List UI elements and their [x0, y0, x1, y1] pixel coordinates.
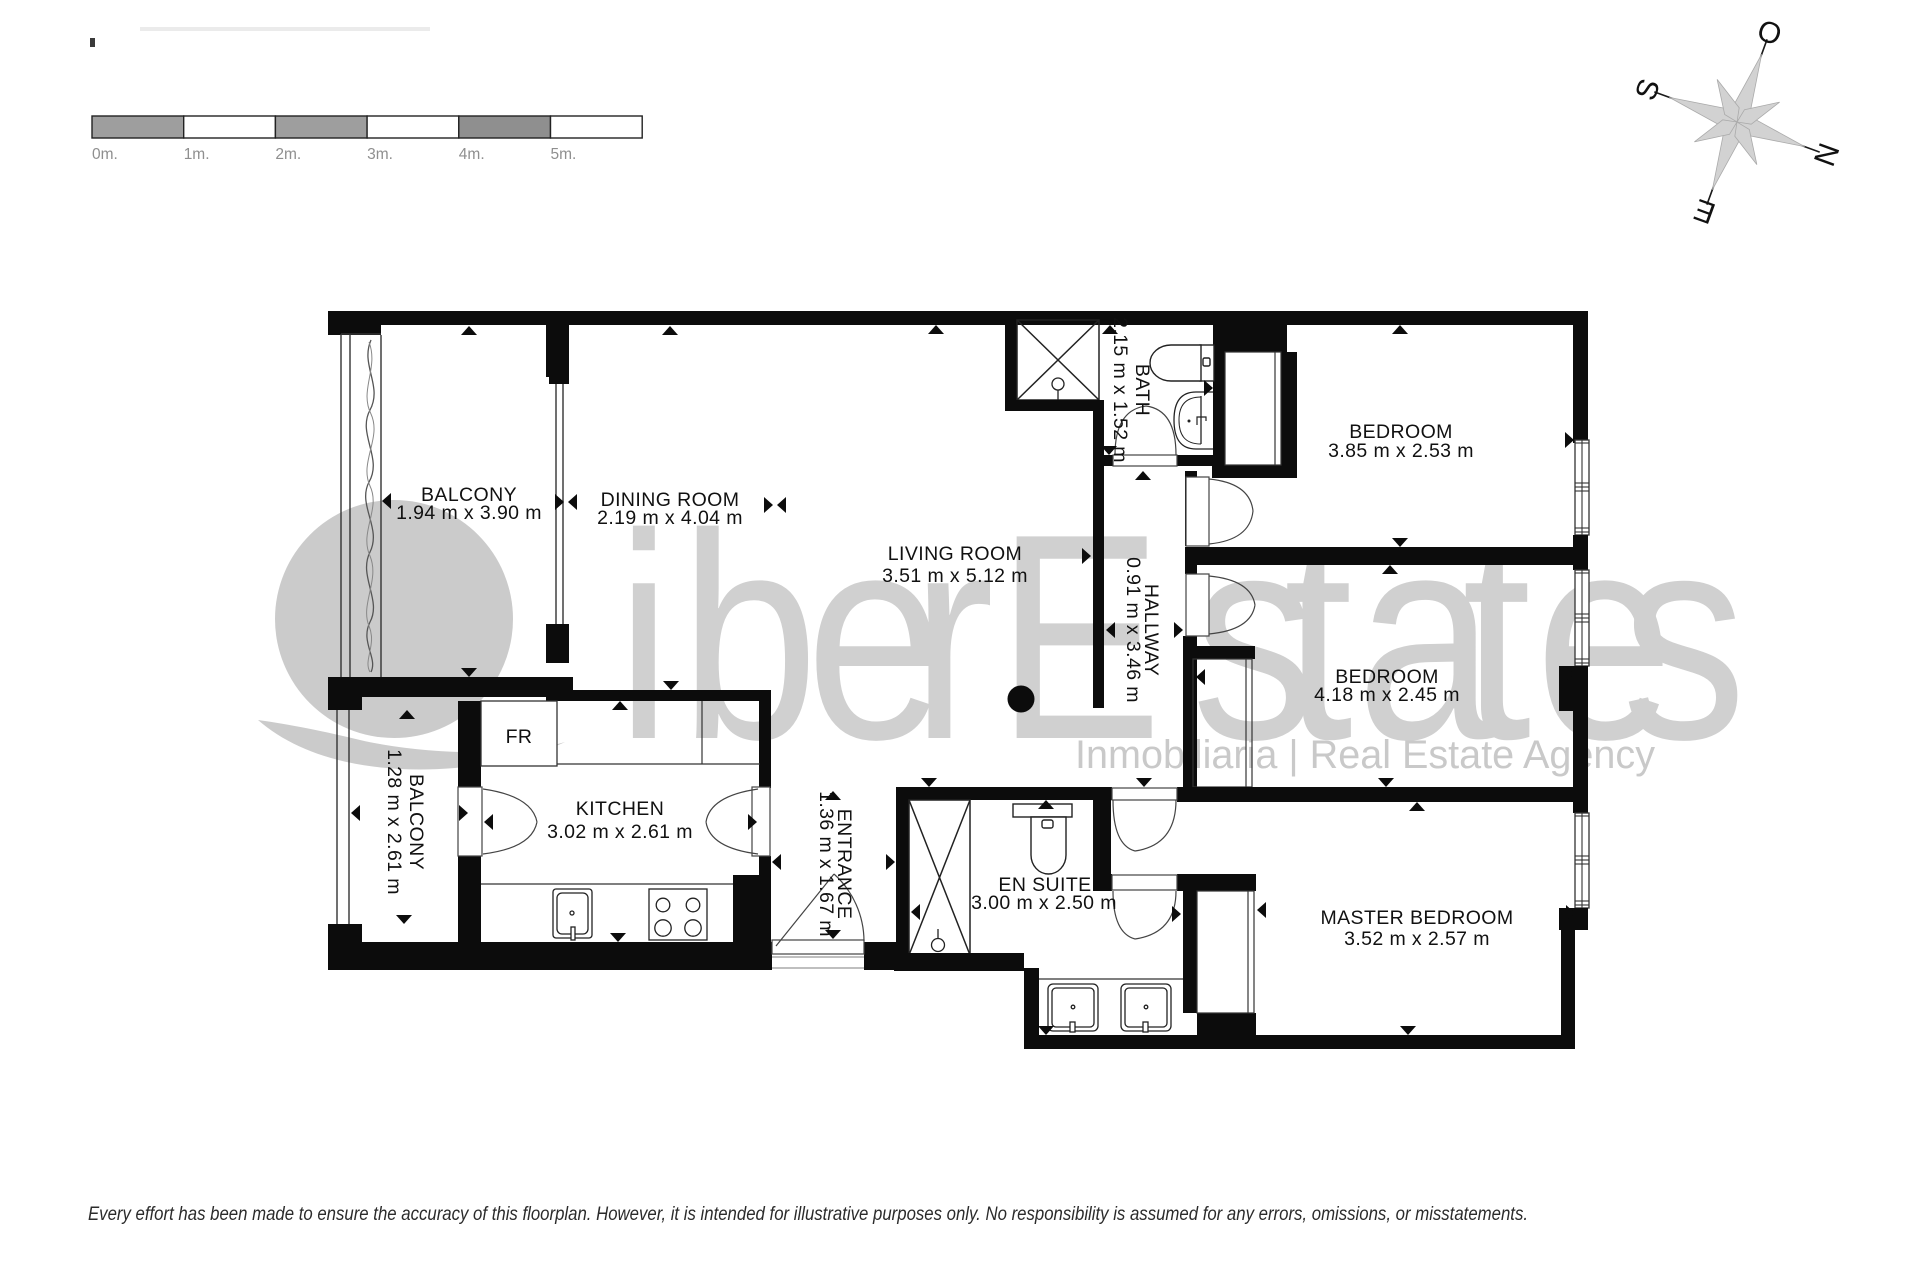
svg-text:1.36 m x 1.67 m: 1.36 m x 1.67 m	[815, 791, 837, 937]
svg-text:3.52 m x 2.57 m: 3.52 m x 2.57 m	[1344, 928, 1490, 950]
svg-text:3.85 m x 2.53 m: 3.85 m x 2.53 m	[1328, 440, 1474, 462]
svg-text:BALCONY: BALCONY	[405, 774, 427, 870]
svg-text:3.02 m x 2.61 m: 3.02 m x 2.61 m	[547, 821, 693, 843]
svg-text:0.91 m x 3.46 m: 0.91 m x 3.46 m	[1122, 557, 1144, 703]
svg-text:2m.: 2m.	[275, 146, 301, 163]
svg-text:2.15 m x 1.52 m: 2.15 m x 1.52 m	[1109, 317, 1131, 463]
svg-text:Every effort has been made to: Every effort has been made to ensure the…	[88, 1204, 1528, 1225]
svg-text:4m.: 4m.	[459, 146, 485, 163]
svg-text:1.28 m x 2.61 m: 1.28 m x 2.61 m	[383, 749, 405, 895]
svg-text:Inmobiliaria | Real Estate Age: Inmobiliaria | Real Estate Agency	[1075, 733, 1655, 777]
svg-text:2.19 m x 4.04 m: 2.19 m x 4.04 m	[597, 507, 743, 529]
svg-text:LIVING ROOM: LIVING ROOM	[888, 543, 1022, 565]
svg-text:MASTER BEDROOM: MASTER BEDROOM	[1320, 907, 1513, 929]
svg-text:3m.: 3m.	[367, 146, 393, 163]
svg-text:3.00 m x 2.50 m: 3.00 m x 2.50 m	[971, 892, 1117, 914]
svg-text:FR: FR	[506, 726, 533, 748]
svg-text:3.51 m x 5.12 m: 3.51 m x 5.12 m	[882, 565, 1028, 587]
svg-text:0m.: 0m.	[92, 146, 118, 163]
svg-text:4.18 m x 2.45 m: 4.18 m x 2.45 m	[1314, 684, 1460, 706]
svg-text:1m.: 1m.	[184, 146, 210, 163]
svg-text:1.94 m x 3.90 m: 1.94 m x 3.90 m	[396, 502, 542, 524]
svg-text:KITCHEN: KITCHEN	[576, 798, 664, 820]
svg-text:BATH: BATH	[1131, 364, 1153, 416]
svg-text:5m.: 5m.	[551, 146, 577, 163]
